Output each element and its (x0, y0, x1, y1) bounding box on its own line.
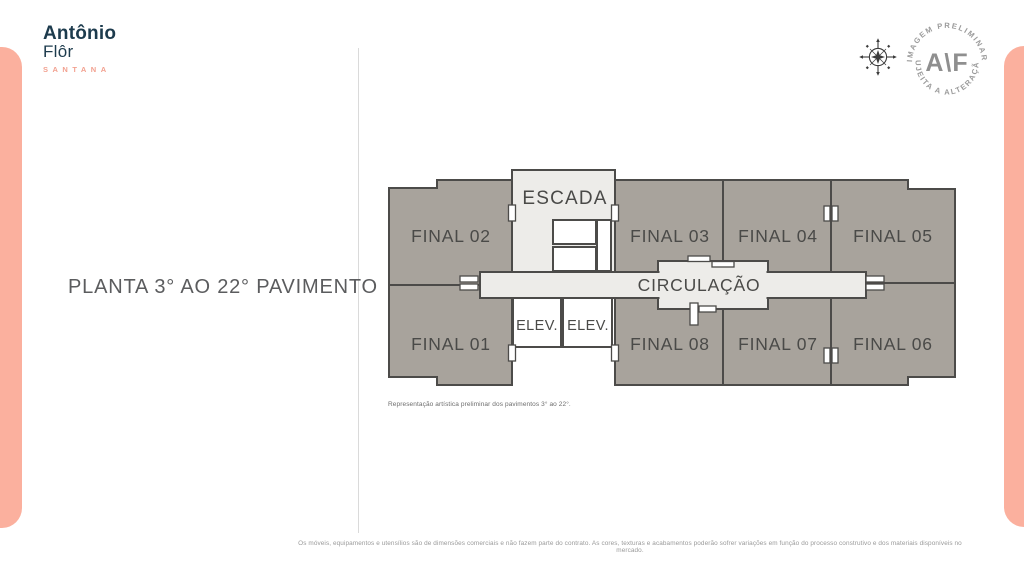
unit-label-final-02: FINAL 02 (411, 226, 491, 246)
door-marker (832, 206, 838, 221)
brand-logo: Antônio Flôr SANTANA (43, 24, 116, 73)
door-marker (712, 262, 734, 268)
door-marker (509, 205, 516, 221)
stair-landing (597, 220, 611, 271)
door-marker (612, 205, 619, 221)
right-accent-bar (1004, 46, 1024, 527)
unit-label-final-04: FINAL 04 (738, 226, 818, 246)
floor-plan: ESCADA FINAL 02 FINAL 03 FINAL 04 FINAL … (383, 164, 961, 392)
page-title: PLANTA 3° AO 22° PAVIMENTO (68, 276, 378, 299)
door-marker (824, 348, 830, 363)
unit-label-final-05: FINAL 05 (853, 226, 933, 246)
stair-flight-1 (553, 220, 596, 244)
brand-tagline: SANTANA (43, 66, 116, 74)
stair-flight-2 (553, 247, 596, 271)
room-label-elev-2: ELEV. (567, 318, 609, 334)
door-marker (690, 303, 698, 325)
door-marker (509, 345, 516, 361)
brand-name-line1: Antônio (43, 24, 116, 43)
room-label-elev-1: ELEV. (516, 318, 558, 334)
unit-label-final-08: FINAL 08 (630, 334, 710, 354)
door-marker (832, 348, 838, 363)
room-label-circulacao: CIRCULAÇÃO (638, 274, 761, 295)
door-marker (612, 345, 619, 361)
room-label-escada: ESCADA (522, 188, 607, 209)
left-accent-bar (0, 47, 22, 528)
unit-label-final-01: FINAL 01 (411, 334, 491, 354)
slide-canvas: Antônio Flôr SANTANA PLANTA 3° AO 22° PA… (0, 0, 1024, 576)
compass-icon (858, 37, 898, 77)
door-marker (866, 284, 884, 290)
door-marker (699, 306, 716, 312)
door-marker (460, 276, 478, 282)
unit-label-final-03: FINAL 03 (630, 226, 710, 246)
corridor-opening-top (660, 270, 767, 274)
door-marker (688, 256, 710, 262)
plan-caption: Representação artística preliminar dos p… (388, 401, 571, 408)
unit-label-final-07: FINAL 07 (738, 334, 818, 354)
unit-label-final-06: FINAL 06 (853, 334, 933, 354)
stamp-monogram: A\F (925, 49, 968, 77)
footer-disclaimer: Os móveis, equipamentos e utensílios são… (290, 540, 970, 554)
door-marker (824, 206, 830, 221)
brand-name-line2: Flôr (43, 43, 116, 60)
corridor-opening-bottom (660, 296, 767, 300)
door-marker (866, 276, 884, 282)
preliminary-image-stamp: | IMAGEM PRELIMINAR | SUJEITA A ALTERAÇÃ… (902, 18, 992, 108)
door-marker (460, 284, 478, 290)
